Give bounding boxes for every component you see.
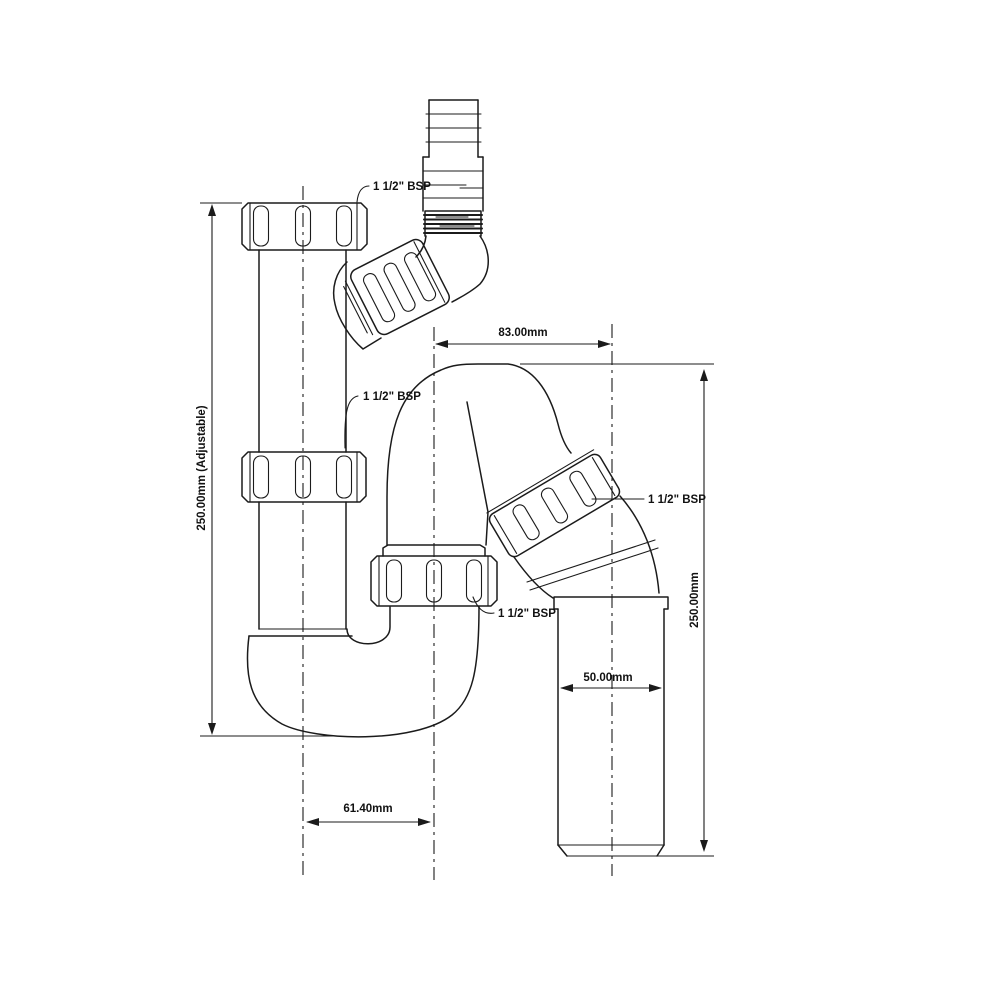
outlet-assembly <box>485 449 659 598</box>
trap-diagram-svg: 250.00mm (Adjustable) 250.00mm 83.00mm 6… <box>0 0 1000 1000</box>
trap-u-bend <box>247 545 497 737</box>
dimension-trap-centres: 61.40mm <box>306 803 431 826</box>
outlet-cylinder <box>554 597 668 856</box>
elbow-nut <box>339 237 452 342</box>
outlet-pipe <box>514 557 553 598</box>
outlet-nut <box>485 449 622 559</box>
adjuster-nut <box>242 452 366 502</box>
inlet-assembly <box>242 203 367 636</box>
dim-left-height-label: 250.00mm (Adjustable) <box>196 405 208 530</box>
outlet-compression-ring <box>527 540 658 590</box>
dimension-top-width: 83.00mm <box>435 327 611 348</box>
technical-drawing: 250.00mm (Adjustable) 250.00mm 83.00mm 6… <box>0 0 1000 1000</box>
dim-top-width-label: 83.00mm <box>498 327 547 339</box>
dome-inner-wall <box>467 402 488 545</box>
dim-trap-centres-label: 61.40mm <box>343 803 392 815</box>
dimension-outlet-diameter: 50.00mm <box>560 672 662 692</box>
hose-threads <box>424 211 482 236</box>
bsp-outlet-label: 1 1/2" BSP <box>648 494 706 506</box>
inlet-elbow <box>334 236 489 349</box>
flexible-hose <box>423 100 483 236</box>
dim-right-height-label: 250.00mm <box>689 572 701 628</box>
inlet-nut-top <box>242 203 367 250</box>
bsp-trap-union-label: 1 1/2" BSP <box>498 608 556 620</box>
bsp-inlet-label: 1 1/2" BSP <box>363 391 421 403</box>
dim-outlet-diameter-label: 50.00mm <box>583 672 632 684</box>
bsp-top-label: 1 1/2" BSP <box>373 181 431 193</box>
